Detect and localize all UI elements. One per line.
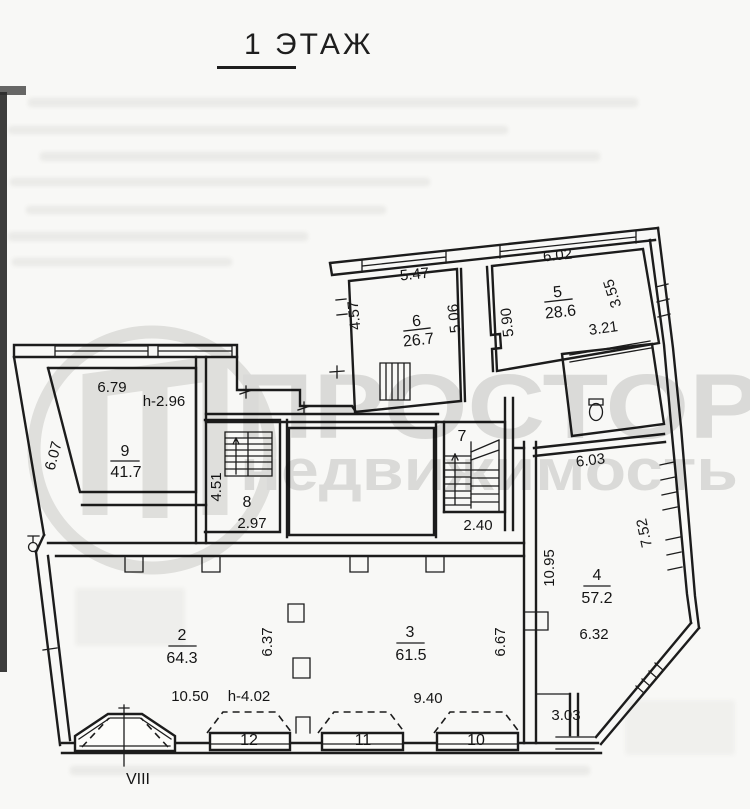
porch-10-number: 10	[467, 732, 485, 749]
room-2-number: 2	[178, 627, 187, 644]
dim-6-02: 6.02	[542, 246, 573, 266]
room-6-number: 6	[411, 313, 422, 331]
porch-12-number: 12	[240, 732, 258, 749]
dim-10-95: 10.95	[541, 549, 558, 587]
bay-viii-number: VIII	[126, 771, 150, 788]
porch-11: 11	[318, 712, 405, 750]
room-4-area: 57.2	[581, 590, 612, 607]
dim-6-32: 6.32	[579, 626, 608, 643]
floor-plan-drawing: 9 41.7 6.79 h-2.96 6.07 8 4.51 2.97 7 2.…	[0, 0, 750, 809]
dim-5-90: 5.90	[498, 307, 518, 338]
dim-7-52: 7.52	[633, 517, 656, 549]
room-5-area: 28.6	[544, 302, 577, 322]
dim-4-57: 4.57	[345, 300, 365, 331]
porch-12: 12	[207, 712, 292, 750]
dim-3-03: 3.03	[551, 707, 580, 724]
room-3-area: 61.5	[395, 647, 426, 664]
bay-window-viii: VIII	[75, 705, 175, 788]
room-9-area: 41.7	[110, 464, 141, 481]
room-4-number: 4	[593, 567, 602, 584]
dim-9-40: 9.40	[413, 690, 442, 707]
watermark-brand-sub: недвижимость	[240, 438, 738, 503]
porch-10: 10	[434, 712, 520, 750]
entry-steps	[556, 737, 594, 749]
porch-11-number: 11	[355, 732, 372, 749]
scanned-floorplan-page: { "title": "1 ЭТАЖ", "watermark": { "bra…	[0, 0, 750, 809]
columns	[288, 604, 310, 678]
room-5-number: 5	[552, 284, 563, 302]
dim-10-50: 10.50	[171, 688, 209, 705]
dim-6-37: 6.37	[259, 627, 276, 656]
dim-6-07: 6.07	[42, 440, 66, 473]
dim-5-47: 5.47	[399, 265, 430, 285]
room-6-area: 26.7	[402, 330, 435, 350]
dim-2-40: 2.40	[463, 517, 492, 534]
dim-3-21: 3.21	[588, 318, 619, 339]
wall-bump	[296, 717, 310, 733]
pipe-symbol	[29, 543, 38, 552]
dim-3-55: 3.55	[600, 277, 625, 310]
room-9-number: 9	[121, 443, 130, 460]
dim-6-67: 6.67	[492, 627, 509, 656]
room-2-area: 64.3	[166, 650, 197, 667]
dim-h-4-02: h-4.02	[228, 688, 271, 705]
room-3-number: 3	[406, 624, 415, 641]
